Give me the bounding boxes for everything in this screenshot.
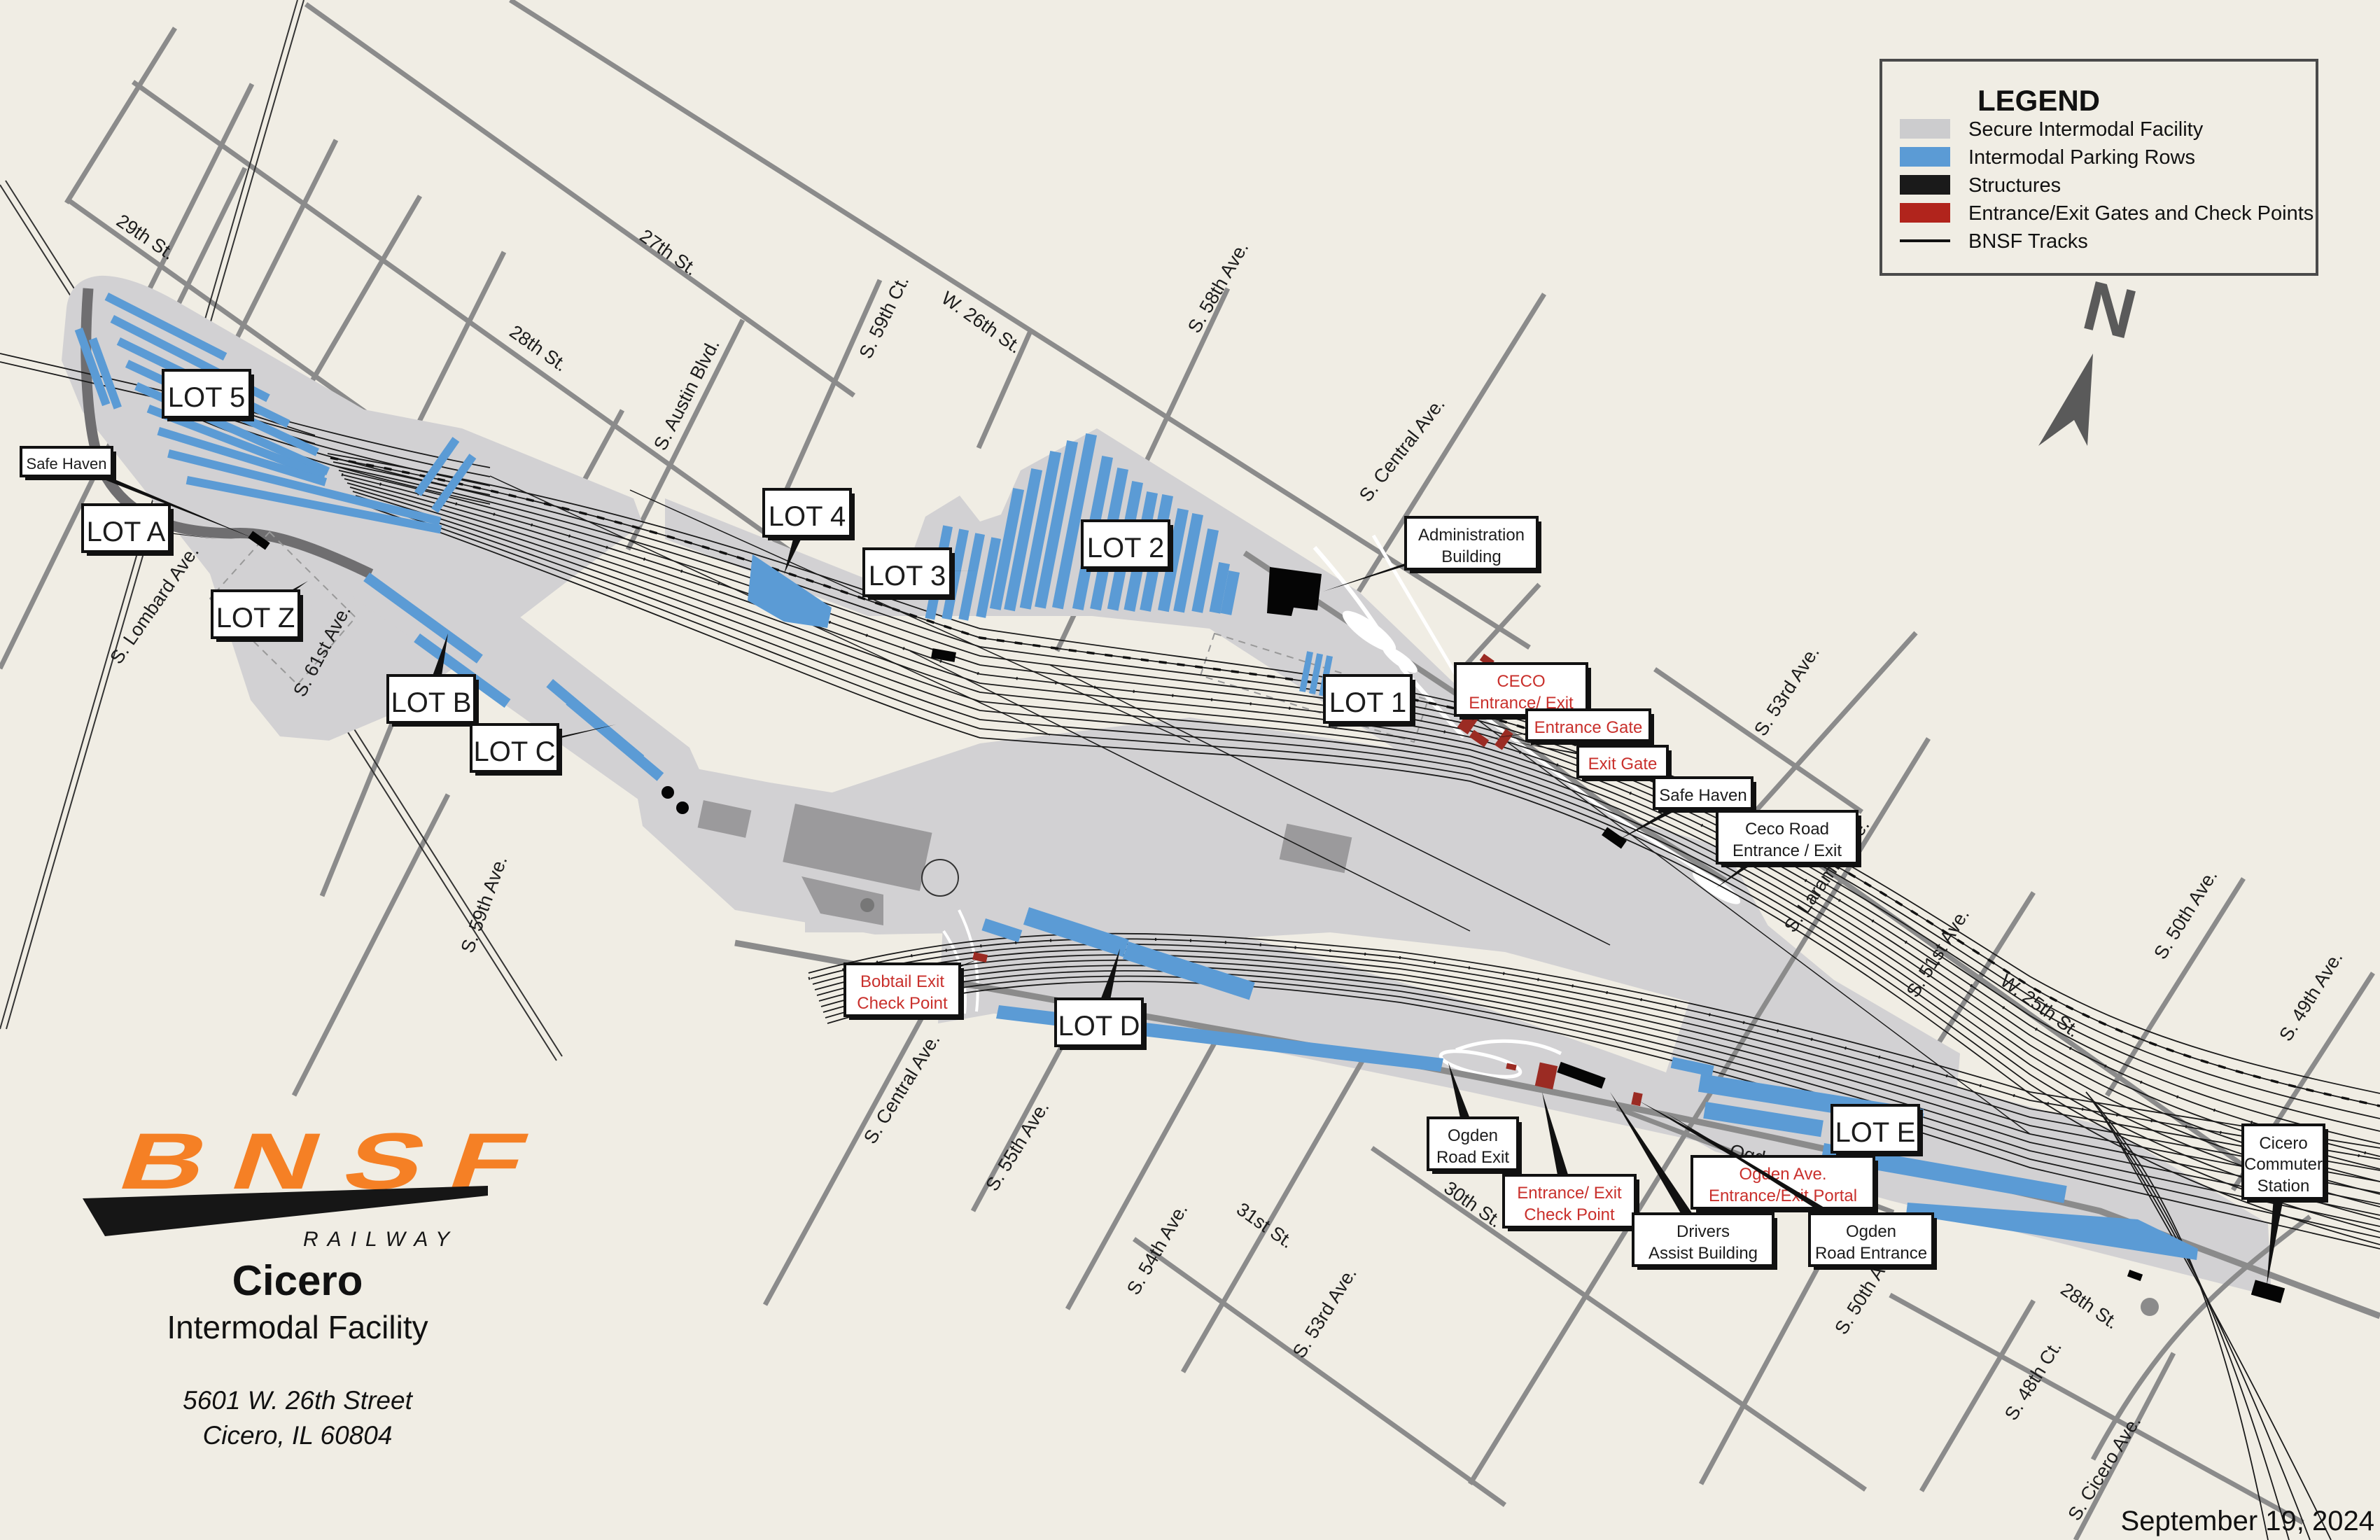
svg-text:Entrance / Exit: Entrance / Exit bbox=[1732, 841, 1842, 860]
svg-text:Drivers: Drivers bbox=[1676, 1222, 1730, 1241]
svg-text:Structures: Structures bbox=[1968, 174, 2061, 197]
svg-text:Safe Haven: Safe Haven bbox=[1659, 786, 1746, 805]
svg-text:CECO: CECO bbox=[1497, 672, 1545, 691]
svg-text:Secure Intermodal Facility: Secure Intermodal Facility bbox=[1968, 118, 2204, 141]
svg-text:LOT B: LOT B bbox=[391, 687, 472, 718]
svg-text:Cicero, IL 60804: Cicero, IL 60804 bbox=[203, 1421, 393, 1450]
svg-text:LOT D: LOT D bbox=[1058, 1011, 1140, 1042]
svg-text:Cicero: Cicero bbox=[232, 1257, 363, 1304]
svg-text:Intermodal Parking Rows: Intermodal Parking Rows bbox=[1968, 146, 2195, 169]
svg-text:Entrance/Exit Portal: Entrance/Exit Portal bbox=[1709, 1186, 1857, 1205]
svg-text:Ogden: Ogden bbox=[1448, 1126, 1498, 1145]
svg-text:BNSF Tracks: BNSF Tracks bbox=[1968, 230, 2088, 253]
svg-text:Road Exit: Road Exit bbox=[1436, 1148, 1509, 1167]
svg-text:Cicero: Cicero bbox=[2259, 1134, 2307, 1153]
svg-text:LEGEND: LEGEND bbox=[1977, 84, 2100, 117]
svg-text:Assist Building: Assist Building bbox=[1648, 1244, 1758, 1263]
svg-text:LOT C: LOT C bbox=[473, 736, 555, 767]
svg-text:Entrance/ Exit: Entrance/ Exit bbox=[1517, 1184, 1622, 1203]
svg-text:LOT 4: LOT 4 bbox=[769, 501, 846, 532]
svg-text:LOT 2: LOT 2 bbox=[1087, 533, 1164, 563]
svg-text:Administration: Administration bbox=[1418, 526, 1525, 545]
svg-text:Safe Haven: Safe Haven bbox=[27, 455, 107, 472]
svg-text:Exit Gate: Exit Gate bbox=[1588, 755, 1658, 773]
svg-text:LOT Z: LOT Z bbox=[216, 603, 295, 633]
svg-text:Road Entrance: Road Entrance bbox=[1815, 1244, 1927, 1263]
svg-text:Bobtail Exit: Bobtail Exit bbox=[860, 972, 944, 991]
svg-text:LOT 5: LOT 5 bbox=[168, 382, 245, 413]
svg-text:Commuter: Commuter bbox=[2244, 1155, 2323, 1174]
svg-text:Check Point: Check Point bbox=[857, 994, 948, 1013]
svg-text:Entrance/Exit Gates and Check: Entrance/Exit Gates and Check Points bbox=[1968, 202, 2313, 225]
svg-text:Station: Station bbox=[2257, 1177, 2310, 1196]
svg-text:5601 W. 26th Street: 5601 W. 26th Street bbox=[183, 1386, 413, 1415]
svg-text:Check Point: Check Point bbox=[1524, 1205, 1615, 1224]
svg-text:September 19, 2024: September 19, 2024 bbox=[2121, 1506, 2374, 1536]
svg-text:Ogden: Ogden bbox=[1846, 1222, 1896, 1241]
svg-text:Intermodal Facility: Intermodal Facility bbox=[167, 1309, 428, 1345]
svg-text:LOT A: LOT A bbox=[87, 517, 166, 547]
svg-text:LOT 1: LOT 1 bbox=[1329, 687, 1406, 718]
svg-text:RAILWAY: RAILWAY bbox=[303, 1228, 458, 1251]
svg-text:LOT E: LOT E bbox=[1835, 1117, 1916, 1148]
svg-text:Entrance Gate: Entrance Gate bbox=[1534, 718, 1643, 737]
svg-text:Ceco Road: Ceco Road bbox=[1745, 820, 1829, 839]
svg-text:LOT 3: LOT 3 bbox=[869, 561, 946, 591]
svg-text:Building: Building bbox=[1441, 547, 1501, 566]
